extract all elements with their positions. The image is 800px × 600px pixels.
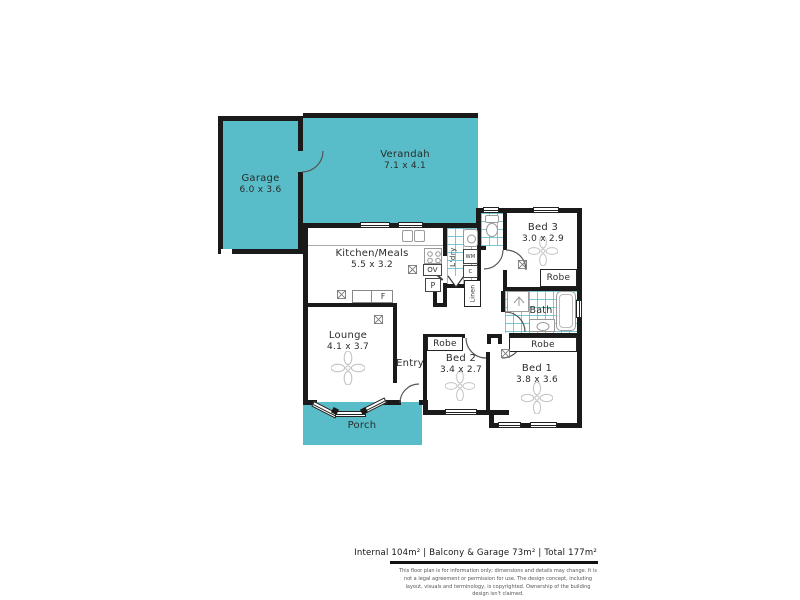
bed3-label: Bed 3 3.0 x 2.9 [512, 221, 574, 246]
room-name: Bed 2 [430, 352, 492, 365]
robe-label: Robe [547, 273, 571, 283]
laundry-trough-icon [463, 229, 478, 247]
laundry-label: L'dry [449, 242, 457, 272]
lounge-label: Lounge 4.1 x 3.7 [308, 329, 388, 354]
washing-machine-box: WM [463, 249, 478, 264]
robe-bed2-box: Robe [427, 336, 463, 351]
floor-plan: OV P F WM C L'dry Linen Robe Robe Robe [0, 0, 800, 600]
wall-right [577, 208, 582, 428]
vanity-icon [529, 319, 555, 332]
room-name: Porch [322, 419, 402, 432]
window-bed1-a [498, 422, 521, 428]
robe-bed1-box: Robe [509, 337, 577, 352]
washing-machine-label: WM [466, 254, 476, 260]
room-name: Verandah [345, 148, 465, 161]
verandah-label: Verandah 7.1 x 4.1 [345, 148, 465, 173]
wall-bath-left [501, 291, 505, 312]
vent-symbol-icon [337, 290, 346, 299]
toilet-icon [485, 215, 499, 223]
sink-icon [402, 230, 413, 242]
toilet-icon [486, 223, 498, 237]
wall-lounge-entry [393, 307, 397, 383]
robe-label: Robe [531, 340, 555, 350]
window-bed1-b [530, 422, 557, 428]
garage-label: Garage 6.0 x 3.6 [218, 172, 303, 197]
wall-kitchen-laundry-a [443, 228, 447, 256]
door-arc-front-entry [400, 384, 419, 403]
room-dims: 3.8 x 3.6 [506, 375, 568, 387]
disclaimer-text: This floor plan is for information only;… [398, 568, 598, 599]
room-name: Bath [520, 305, 562, 318]
cupboard-label: C [468, 269, 472, 275]
garage-door-gap [221, 249, 232, 255]
window-bath [576, 300, 582, 318]
room-dims: 3.0 x 2.9 [512, 234, 574, 246]
pantry-label: P [431, 281, 436, 290]
door-arc-garage [302, 151, 323, 172]
room-dims: 4.1 x 3.7 [308, 342, 388, 354]
window-bed3 [533, 207, 559, 213]
room-name: Garage [218, 172, 303, 185]
bath-label: Bath [520, 305, 562, 318]
wall-kitchen-lounge [306, 303, 397, 307]
room-dims: 6.0 x 3.6 [218, 185, 303, 197]
pantry-box: P [425, 278, 441, 292]
room-dims: 7.1 x 4.1 [345, 161, 465, 173]
vent-symbol-icon [374, 315, 383, 324]
bed2-label: Bed 2 3.4 x 2.7 [430, 352, 492, 377]
bed1-label: Bed 1 3.8 x 3.6 [506, 362, 568, 387]
robe-label: Robe [433, 339, 457, 349]
room-dims: 5.5 x 3.2 [312, 260, 432, 272]
window-bed2 [445, 409, 477, 415]
area-summary: Internal 104m² | Balcony & Garage 73m² |… [250, 548, 597, 558]
room-name: Bed 1 [506, 362, 568, 375]
vent-symbol-icon [501, 349, 510, 358]
room-name: Kitchen/Meals [312, 247, 432, 260]
wall-bed3-left-upper [503, 208, 507, 250]
fridge-label: F [372, 291, 394, 302]
fridge-bench: F [352, 290, 393, 303]
cupboard-box: C [463, 265, 478, 278]
footer-divider [390, 561, 598, 564]
entry-label: Entry [389, 357, 431, 370]
wall-hall-jamb-left [487, 334, 491, 344]
ceiling-fan-icon [331, 351, 365, 385]
linen-label: Linen [469, 285, 476, 303]
room-dims: 3.4 x 2.7 [430, 365, 492, 377]
porch-label: Porch [322, 419, 402, 432]
wall-left [303, 228, 308, 405]
window-wc [483, 207, 499, 213]
robe-bed3-box: Robe [540, 269, 577, 287]
sink-icon [414, 230, 425, 242]
kitchen-label: Kitchen/Meals 5.5 x 3.2 [312, 247, 432, 272]
wall-pantry-bottom [433, 303, 447, 307]
room-name: Entry [389, 357, 431, 370]
vent-symbol-icon [518, 260, 527, 269]
room-name: Bed 3 [512, 221, 574, 234]
door-arc-wc [484, 250, 503, 269]
room-name: Lounge [308, 329, 388, 342]
linen-box: Linen [464, 280, 481, 307]
